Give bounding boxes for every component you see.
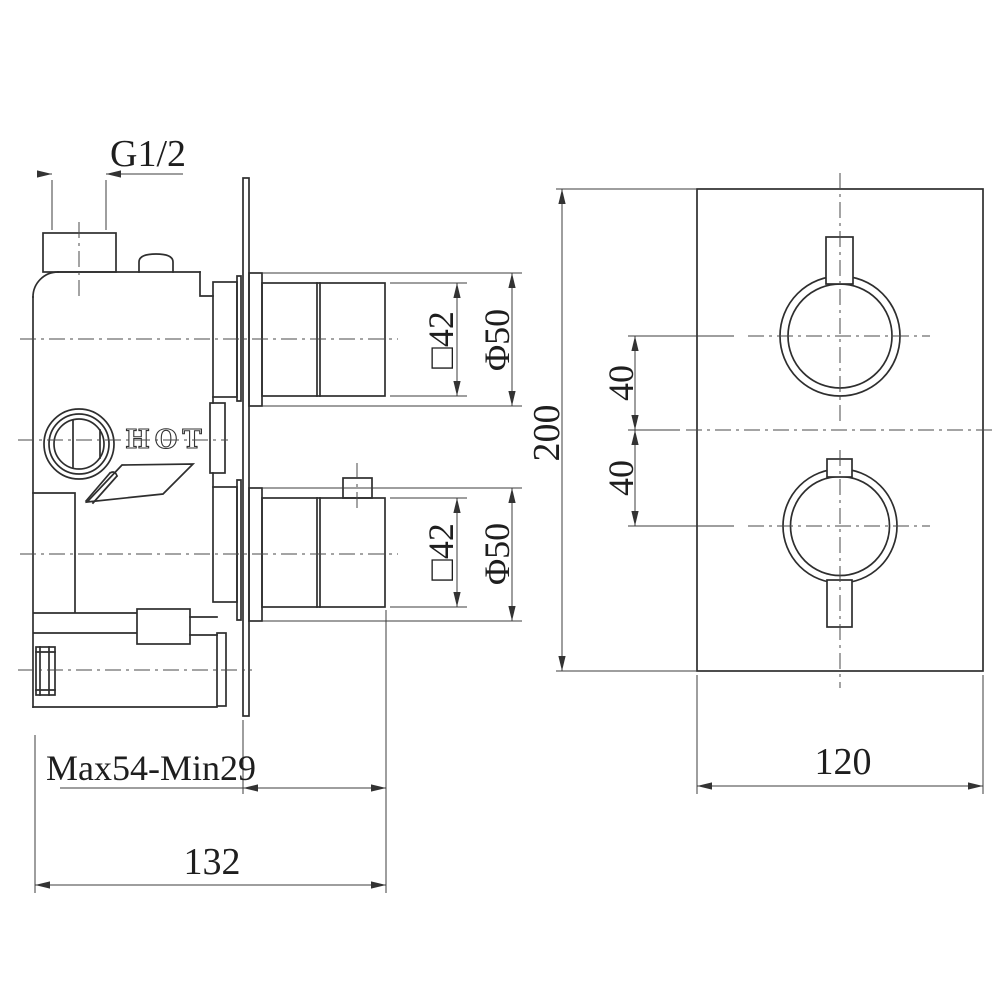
knob-square-bottom-label: □42 xyxy=(421,523,461,581)
wall-plate-side xyxy=(243,178,249,716)
mid-boss xyxy=(210,403,225,473)
knob-offset-bottom-label: 40 xyxy=(601,460,641,496)
cartridge-lower-side xyxy=(213,478,385,706)
outlet-pipe xyxy=(34,609,217,695)
outlet-nut xyxy=(36,647,55,695)
dimension-square42-top: □42 xyxy=(390,283,467,396)
plate-width-label: 120 xyxy=(815,741,872,783)
plate-height-label: 200 xyxy=(526,405,568,462)
centerlines-front xyxy=(628,173,993,688)
dimension-knob-spacing: 40 40 xyxy=(601,336,641,526)
outlet-coupler xyxy=(137,609,190,644)
technical-drawing-canvas: HOT G1/2 □42 xyxy=(0,0,1000,1000)
dimension-square42-bottom: □42 xyxy=(390,498,467,607)
lower-knob-side xyxy=(262,498,385,607)
technical-drawing-page: HOT G1/2 □42 xyxy=(0,0,1000,1000)
knob-square-top-label: □42 xyxy=(421,311,461,369)
cartridge-upper-side xyxy=(210,273,385,473)
dimension-plate-width: 120 xyxy=(697,675,983,794)
top-cap-dome xyxy=(139,254,173,272)
body-depth-label: 132 xyxy=(184,841,241,883)
knob-diameter-bottom-label: Φ50 xyxy=(477,523,517,585)
depth-range-label: Max54-Min29 xyxy=(46,748,256,788)
wall-plate-bar xyxy=(243,178,249,716)
thread-size-label: G1/2 xyxy=(110,133,186,175)
front-view: 200 40 40 120 xyxy=(526,173,993,794)
dimension-phi50-bottom: Φ50 xyxy=(262,488,522,621)
hot-inlet-port xyxy=(44,409,114,479)
knob-offset-top-label: 40 xyxy=(601,365,641,401)
dimension-thread: G1/2 xyxy=(38,133,186,230)
dimension-phi50-top: Φ50 xyxy=(262,273,522,406)
side-view: HOT G1/2 □42 xyxy=(18,133,522,893)
knob-diameter-top-label: Φ50 xyxy=(477,309,517,371)
